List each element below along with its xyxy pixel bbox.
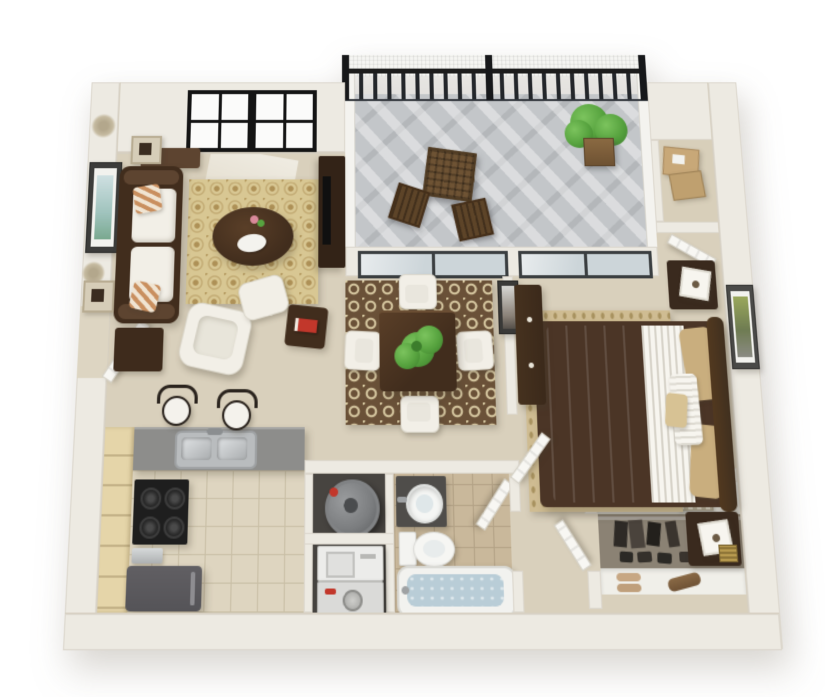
water-heater (325, 479, 380, 537)
sink-basin-right (217, 437, 248, 460)
dining-chair-south (400, 396, 439, 433)
end-table (113, 328, 164, 372)
cube-wall-shelf (82, 280, 115, 312)
sofa-arm (123, 170, 179, 184)
dryer-button-red (325, 589, 336, 595)
hanging-clothes (614, 520, 628, 547)
balcony-railing (345, 69, 648, 101)
dining-chair-west (344, 330, 382, 371)
bathtub-faucet (401, 586, 409, 594)
tv-screen (322, 176, 330, 244)
bed (533, 321, 735, 507)
gold-trinket-box (718, 545, 738, 563)
stove-burner (139, 516, 161, 538)
bistro-table (422, 147, 477, 202)
kitchen-sink (174, 431, 257, 470)
framed-art-living-image (94, 175, 114, 239)
storage-closet-bottom-wall (656, 222, 721, 233)
bed-comforter (546, 326, 652, 503)
apartment-plan (63, 55, 782, 649)
hanging-clothes (646, 521, 661, 546)
striped-throw-pillow (132, 183, 162, 214)
closet-west-wall-lower (587, 571, 602, 609)
washer-controls (360, 554, 375, 559)
bathroom-vanity (396, 476, 447, 527)
vessel-sink-bowl (416, 494, 434, 513)
chair-seat (407, 402, 431, 421)
dryer-dial (343, 590, 363, 612)
south-wing-top-wall (304, 460, 519, 474)
box-label (672, 154, 685, 164)
cube-wall-shelf (130, 136, 162, 164)
railing-post (638, 55, 648, 100)
countertop-appliance (131, 548, 162, 563)
cube-shelf-decor (91, 289, 104, 302)
plant-pot (583, 138, 615, 166)
railing-post (485, 55, 493, 100)
sandals-pair (617, 584, 642, 592)
table-flowers-leaves (257, 220, 264, 227)
shoe-row (657, 552, 672, 564)
floor-plan-render (0, 0, 825, 697)
coffee-table (212, 207, 294, 266)
bedroom-dresser (514, 285, 546, 405)
bathroom-faucet (397, 497, 407, 503)
table-lamp (679, 266, 711, 301)
coffee-table-tray (236, 232, 267, 254)
dresser-knob (529, 363, 535, 368)
washer (317, 546, 384, 582)
water-heater-cap (344, 498, 358, 513)
stove-burner (164, 488, 185, 510)
stove-burner (140, 488, 162, 510)
dryer (317, 581, 384, 615)
bathtub (397, 566, 517, 618)
stove-burner (163, 516, 185, 538)
washer-lid (326, 552, 355, 578)
red-book (294, 318, 317, 333)
living-room-window (186, 90, 252, 152)
bottom-wall (63, 613, 782, 651)
shoe-row (637, 551, 652, 562)
centerpiece-plant-core (411, 341, 422, 352)
sink-basin-left (181, 437, 212, 460)
dining-chair-north (399, 274, 437, 309)
sink-faucet (207, 428, 223, 435)
balcony (345, 55, 659, 276)
toilet-bowl (413, 532, 456, 567)
refrigerator-handle (190, 572, 195, 606)
bathtub-water (407, 574, 504, 606)
toilet-bowl-inner (423, 540, 445, 558)
utility-divider-wall (304, 533, 394, 545)
entertainment-cabinet (318, 156, 345, 268)
water-heater-valve (329, 488, 338, 497)
chair-seat (405, 285, 428, 303)
refrigerator (125, 566, 202, 611)
cardboard-box (669, 170, 706, 200)
sofa (113, 166, 183, 323)
vessel-sink (406, 484, 444, 523)
cube-shelf-decor (139, 143, 152, 155)
dining-chair-east (456, 330, 495, 371)
bed-pillow-accent (665, 392, 688, 428)
framed-art-bedroom (726, 285, 760, 369)
kitchen (96, 427, 305, 612)
range-stove (132, 479, 189, 544)
dresser-knob (527, 317, 532, 322)
sliding-glass-door-bedroom (518, 251, 653, 278)
shoe-row (620, 551, 633, 563)
sandals-pair (616, 573, 641, 581)
living-room-window (251, 90, 317, 152)
chair-seat (355, 338, 374, 363)
armchair-cushion (191, 314, 239, 361)
bedroom-west-wall-lower (512, 571, 525, 613)
side-table (284, 304, 328, 349)
chair-seat (464, 338, 484, 363)
entry-doorway-opening (77, 306, 110, 378)
